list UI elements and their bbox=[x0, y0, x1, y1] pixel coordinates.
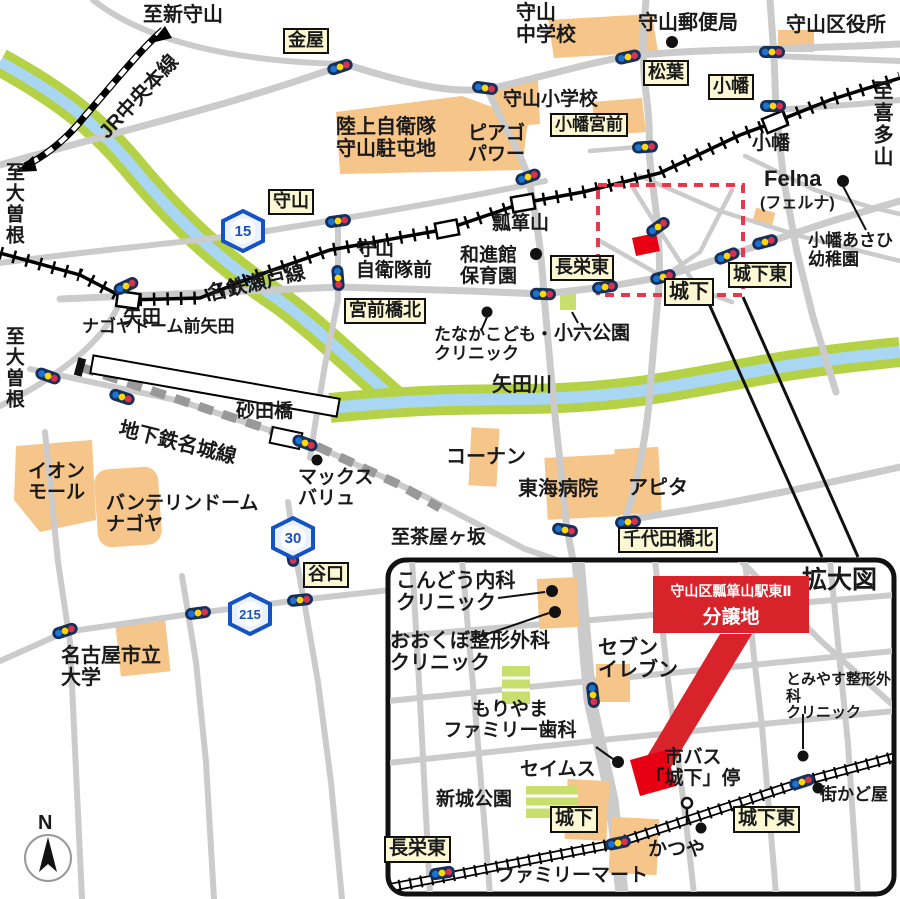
badge-moriyama: 守山 bbox=[268, 189, 314, 215]
post-office-dot bbox=[666, 36, 678, 48]
route-shield-15: 15 bbox=[220, 209, 266, 253]
station-label-moriyama-jsdf: 守山 自衛隊前 bbox=[356, 240, 432, 282]
location-map: 至新守山 JR中央本線 金屋 守山 中学校 守山郵便局 守山区役所 松葉 小幡 … bbox=[0, 0, 900, 899]
dir-ozone-1: 至大曽根 bbox=[2, 162, 23, 246]
inset-badge-shiroshita: 城下 bbox=[550, 806, 598, 833]
poi-felna: Felna bbox=[764, 167, 821, 191]
inset-badge-choei-higashi: 長栄東 bbox=[384, 836, 451, 863]
badge-shiroshita: 城下 bbox=[664, 278, 714, 306]
poi-obata-asahi: 小幡あさひ 幼稚園 bbox=[808, 232, 893, 269]
station-label-nagoya-dome: ナゴヤドーム前矢田 bbox=[82, 318, 235, 337]
station-hyotanyama bbox=[511, 194, 535, 213]
inset-badge-shiroshita-higashi: 城下東 bbox=[733, 806, 800, 833]
traffic-signal-icon bbox=[751, 233, 779, 251]
station-moriyama-jsdf bbox=[435, 220, 459, 239]
station-label-sunadabashi: 砂田橋 bbox=[236, 402, 293, 423]
site-banner-line2: 分譲地 bbox=[655, 602, 807, 629]
station-label-obata: 小幡 bbox=[752, 134, 790, 155]
poi-familymart: ファミリーマート bbox=[496, 866, 648, 887]
traffic-signal-icon bbox=[632, 140, 659, 154]
tanaka-clinic-dot bbox=[482, 307, 493, 318]
poi-tanaka-clinic: たなかこども・ クリニック bbox=[434, 326, 553, 363]
poi-moriyama-jhs: 守山 中学校 bbox=[516, 2, 576, 46]
inset-title: 拡大図 bbox=[802, 567, 877, 595]
max-valu-dot bbox=[312, 455, 323, 466]
poi-max-valu: マックス バリュ bbox=[298, 468, 373, 510]
traffic-signal-icon bbox=[551, 522, 579, 538]
washinkan-dot bbox=[530, 248, 542, 260]
felna-dot bbox=[837, 175, 849, 187]
badge-obata: 小幡 bbox=[708, 74, 754, 100]
poi-nagoya-city-univ: 名古屋市立 大学 bbox=[61, 645, 161, 689]
traffic-signal-icon bbox=[530, 288, 556, 301]
poi-kondo-clinic: こんどう内科 クリニック bbox=[396, 570, 515, 614]
dir-chayagasaka: 至茶屋ヶ坂 bbox=[391, 528, 486, 549]
poi-tomiyasu-clinic: とみやす整形外科 クリニック bbox=[786, 672, 900, 722]
badge-chiyodabashi-kita: 千代田橋北 bbox=[618, 527, 718, 553]
poi-apita: アピタ bbox=[628, 477, 688, 499]
poi-moriyama-post: 守山郵便局 bbox=[638, 12, 738, 34]
station-label-hyotanyama: 瓢箪山 bbox=[492, 214, 549, 235]
badge-obata-miyamae: 小幡宮前 bbox=[550, 113, 628, 137]
poi-katsuya: かつや bbox=[648, 840, 705, 861]
badge-miyamaebashi-kita: 宮前橋北 bbox=[344, 298, 426, 324]
route-shield-15-number: 15 bbox=[220, 209, 266, 253]
poi-tokai-hospital: 東海病院 bbox=[518, 478, 598, 500]
badge-matsuba: 松葉 bbox=[643, 60, 689, 86]
poi-washinkan: 和進館 保育園 bbox=[460, 246, 517, 288]
station-obata bbox=[762, 111, 788, 133]
traffic-signal-icon bbox=[759, 46, 785, 58]
poi-koroku-park: 小六公園 bbox=[554, 324, 630, 345]
dir-kitayama: 至喜多山 bbox=[870, 80, 892, 168]
poi-machikadoya: 街かど屋 bbox=[820, 786, 888, 805]
traffic-signal-icon bbox=[324, 213, 351, 229]
koroku-park-square bbox=[560, 294, 576, 310]
route-shield-30: 30 bbox=[270, 516, 316, 560]
poi-bus-stop: 市バス 「城下」停 bbox=[628, 748, 758, 790]
inset-projection-lines bbox=[706, 297, 858, 557]
site-banner: 守山区瓢箪山駅東Ⅱ 分譲地 bbox=[653, 576, 809, 633]
poi-moriyama-dental: もりやま ファミリー歯科 bbox=[430, 700, 590, 742]
river-label-yada: 矢田川 bbox=[492, 374, 552, 396]
traffic-signal-icon bbox=[760, 100, 786, 112]
compass bbox=[25, 835, 71, 881]
badge-choei-higashi: 長栄東 bbox=[550, 255, 614, 281]
poi-moriyama-es: 守山小学校 bbox=[503, 90, 598, 111]
poi-konan: コーナン bbox=[446, 446, 526, 468]
river-yada bbox=[330, 352, 900, 408]
site-banner-line1: 守山区瓢箪山駅東Ⅱ bbox=[655, 581, 807, 601]
poi-okubo-clinic: おおくぼ整形外科 クリニック bbox=[390, 630, 550, 674]
poi-moriyama-ward: 守山区役所 bbox=[786, 14, 886, 36]
poi-felna-kana: (フェルナ) bbox=[760, 195, 835, 213]
poi-aeon-mall: イオン モール bbox=[28, 462, 85, 504]
route-shield-30-number: 30 bbox=[270, 516, 316, 560]
route-shield-215: 215 bbox=[227, 592, 273, 636]
dir-ozone-2: 至大曽根 bbox=[2, 326, 23, 410]
compass-n-label: N bbox=[38, 812, 52, 834]
badge-kanaya: 金屋 bbox=[283, 28, 329, 54]
poi-jsdf-base: 陸上自衛隊 守山駐屯地 bbox=[336, 116, 436, 160]
poi-piago: ピアゴ パワー bbox=[468, 124, 525, 166]
traffic-signal-icon bbox=[286, 593, 313, 608]
poi-seims: セイムス bbox=[520, 760, 596, 781]
route-shield-215-number: 215 bbox=[227, 592, 273, 636]
poi-seven-eleven: セブン イレブン bbox=[598, 637, 678, 681]
badge-shiroshita-higashi: 城下東 bbox=[728, 262, 792, 288]
dir-shin-moriyama: 至新守山 bbox=[143, 4, 223, 26]
traffic-signal-icon bbox=[591, 279, 618, 295]
traffic-signal-icon bbox=[326, 57, 354, 76]
badge-taniguchi: 谷口 bbox=[303, 562, 349, 588]
poi-vantelin-dome: バンテリンドーム ナゴヤ bbox=[106, 494, 258, 536]
poi-shinshiro-park: 新城公園 bbox=[436, 790, 512, 811]
